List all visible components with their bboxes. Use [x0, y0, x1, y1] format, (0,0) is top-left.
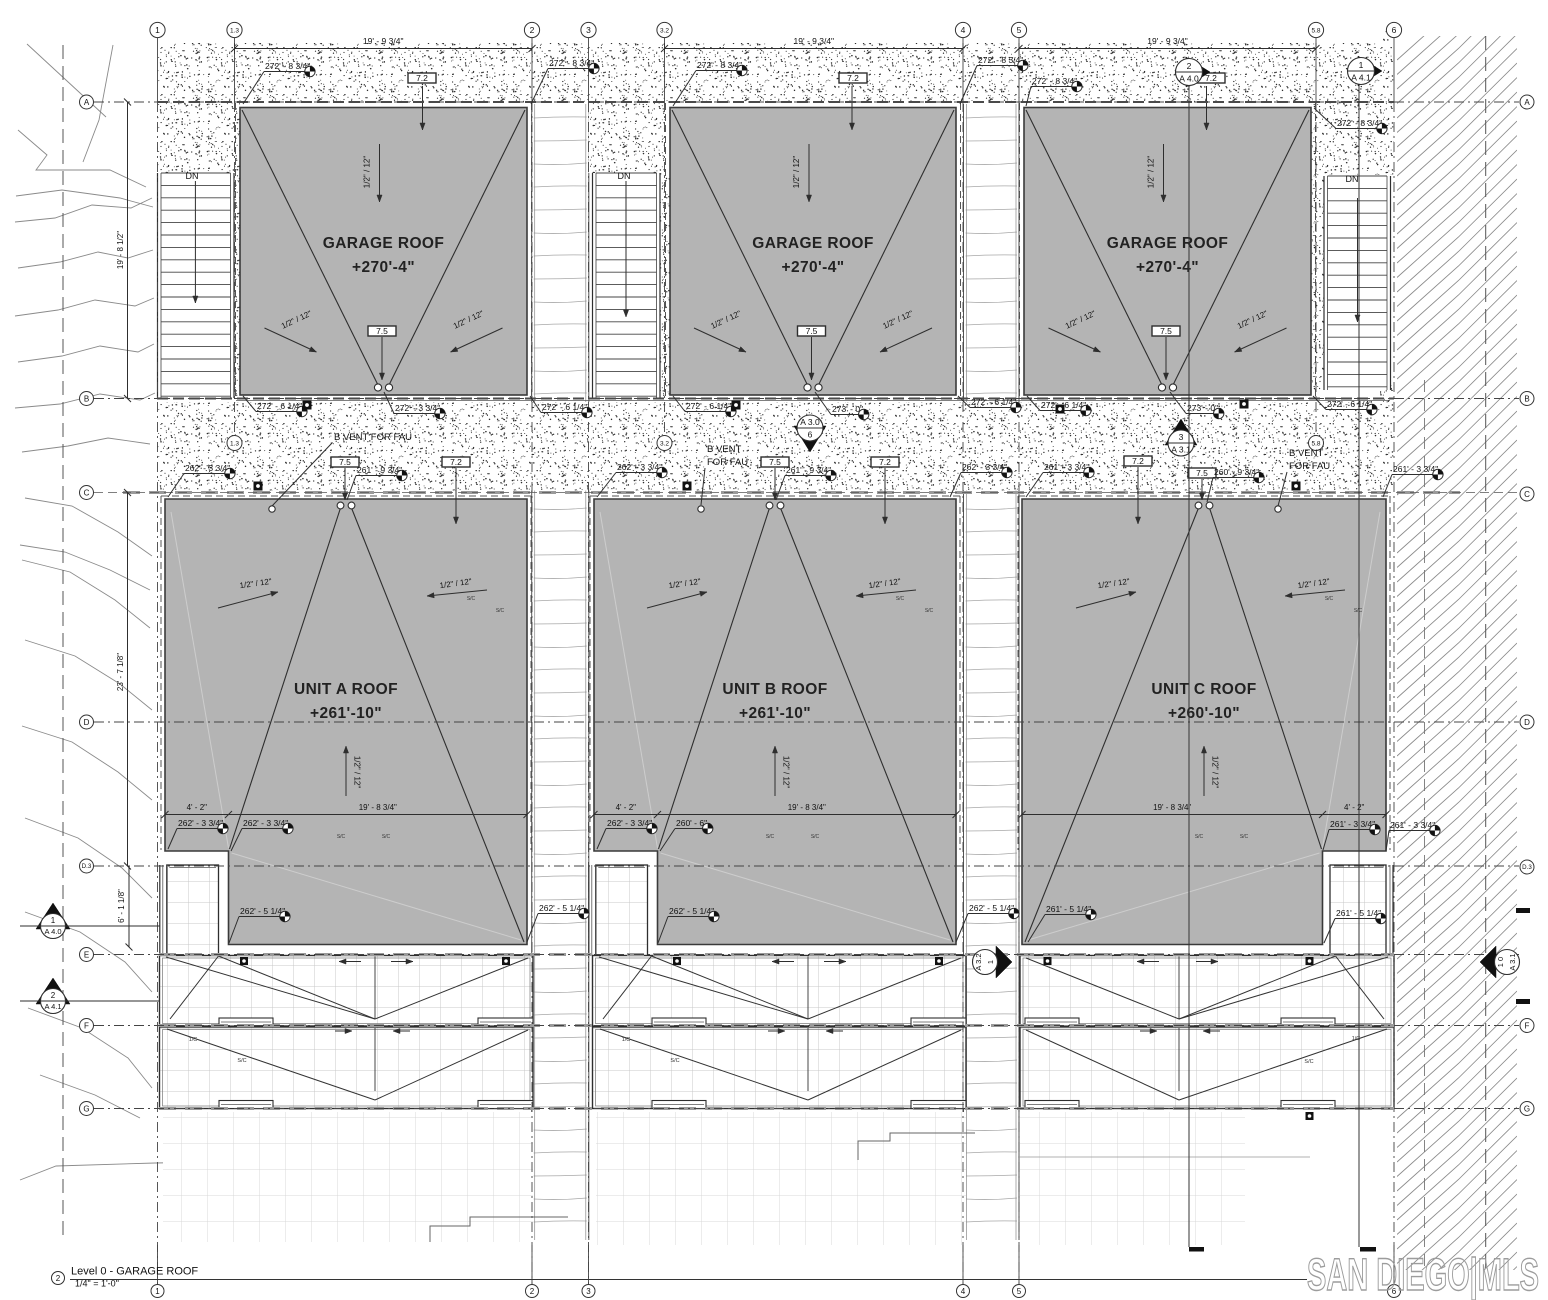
svg-text:1/C: 1/C — [622, 1037, 631, 1043]
svg-text:D: D — [84, 718, 90, 727]
svg-text:19' - 8 3/4": 19' - 8 3/4" — [359, 803, 397, 812]
svg-text:272' - 8 3/4": 272' - 8 3/4" — [549, 58, 594, 68]
svg-text:6: 6 — [1392, 25, 1397, 35]
svg-text:+270'-4": +270'-4" — [1136, 259, 1199, 276]
svg-text:262' - 5 1/4": 262' - 5 1/4" — [240, 906, 285, 916]
svg-text:262' - 3 3/4": 262' - 3 3/4" — [243, 818, 288, 828]
svg-text:A 3.2: A 3.2 — [974, 953, 983, 970]
svg-text:S/C: S/C — [1195, 834, 1204, 840]
svg-text:5: 5 — [1017, 25, 1022, 35]
svg-text:A: A — [1524, 98, 1530, 107]
svg-text:S/C: S/C — [1354, 608, 1363, 614]
svg-text:S/C: S/C — [1240, 834, 1249, 840]
svg-text:UNIT A ROOF: UNIT A ROOF — [294, 681, 398, 698]
svg-text:2: 2 — [530, 1287, 535, 1296]
svg-text:3: 3 — [586, 1287, 591, 1296]
svg-text:1/C: 1/C — [189, 1037, 198, 1043]
svg-text:+261'-10": +261'-10" — [310, 705, 382, 722]
svg-text:C: C — [1524, 490, 1530, 499]
svg-text:272' - 8 3/4": 272' - 8 3/4" — [697, 60, 742, 70]
svg-text:7.5: 7.5 — [769, 457, 781, 467]
svg-text:1/2" / 12": 1/2" / 12" — [1147, 156, 1156, 189]
svg-text:S/C: S/C — [766, 834, 775, 840]
svg-text:261' - 9 3/4": 261' - 9 3/4" — [357, 465, 402, 475]
svg-text:7.5: 7.5 — [376, 326, 388, 336]
svg-text:7.2: 7.2 — [450, 457, 462, 467]
svg-text:2: 2 — [56, 1274, 61, 1283]
svg-text:7.2: 7.2 — [1132, 456, 1144, 466]
svg-text:19' - 9 3/4": 19' - 9 3/4" — [794, 36, 835, 46]
svg-text:A 3.0: A 3.0 — [800, 417, 820, 427]
svg-text:S/C: S/C — [811, 834, 820, 840]
svg-text:4' - 2": 4' - 2" — [616, 803, 637, 812]
svg-text:B VENT: B VENT — [1289, 448, 1324, 459]
svg-text:1.3: 1.3 — [230, 440, 239, 447]
svg-text:4' - 2": 4' - 2" — [1344, 803, 1365, 812]
svg-text:S/C: S/C — [670, 1058, 679, 1064]
svg-text:272' - 8 3/4": 272' - 8 3/4" — [265, 61, 310, 71]
svg-text:S/C: S/C — [925, 608, 934, 614]
svg-text:1/2" / 12": 1/2" / 12" — [792, 156, 801, 189]
svg-text:D: D — [1524, 718, 1530, 727]
svg-text:E: E — [84, 950, 89, 959]
svg-text:261' - 3 3/4": 261' - 3 3/4" — [1330, 819, 1375, 829]
svg-text:272' - 6 1/4": 272' - 6 1/4" — [257, 401, 302, 411]
svg-text:272' - 8 3/4": 272' - 8 3/4" — [1032, 76, 1077, 86]
svg-text:+270'-4": +270'-4" — [352, 259, 415, 276]
svg-text:S/C: S/C — [467, 596, 476, 602]
svg-text:7.5: 7.5 — [806, 326, 818, 336]
svg-text:+270'-4": +270'-4" — [782, 259, 845, 276]
svg-text:1: 1 — [986, 960, 995, 964]
svg-text:3.2: 3.2 — [660, 27, 669, 34]
svg-text:UNIT C ROOF: UNIT C ROOF — [1151, 681, 1256, 698]
svg-text:272' - 6 1/4": 272' - 6 1/4" — [542, 402, 587, 412]
svg-text:1 0: 1 0 — [1496, 957, 1505, 967]
svg-text:261' - 3 3/4": 261' - 3 3/4" — [1393, 464, 1438, 474]
svg-text:A 4.0: A 4.0 — [1179, 74, 1199, 84]
svg-text:1/4" = 1'-0": 1/4" = 1'-0" — [75, 1279, 119, 1289]
svg-text:262' - 3 3/4": 262' - 3 3/4" — [617, 462, 662, 472]
svg-text:262' - 3 3/4": 262' - 3 3/4" — [185, 463, 230, 473]
svg-text:272' - 6 1/4": 272' - 6 1/4" — [971, 397, 1016, 407]
svg-text:7.2: 7.2 — [416, 73, 428, 83]
svg-text:+260'-10": +260'-10" — [1168, 705, 1240, 722]
svg-text:UNIT B ROOF: UNIT B ROOF — [722, 681, 827, 698]
svg-text:272' - 8 3/4": 272' - 8 3/4" — [978, 55, 1023, 65]
svg-text:7.5: 7.5 — [1160, 326, 1172, 336]
svg-text:1: 1 — [155, 1287, 160, 1296]
svg-text:A 3.1: A 3.1 — [1171, 445, 1191, 455]
svg-text:1: 1 — [51, 916, 56, 925]
svg-text:DN: DN — [186, 171, 199, 181]
svg-text:C: C — [84, 488, 90, 497]
svg-text:GARAGE ROOF: GARAGE ROOF — [752, 235, 874, 252]
svg-text:261' - 5 1/4": 261' - 5 1/4" — [1046, 904, 1091, 914]
svg-text:1: 1 — [155, 25, 160, 35]
svg-text:GARAGE ROOF: GARAGE ROOF — [1107, 235, 1229, 252]
svg-text:SAN DIEGO|MLS: SAN DIEGO|MLS — [1307, 1249, 1539, 1300]
svg-text:F: F — [84, 1021, 89, 1030]
svg-text:DN: DN — [1346, 174, 1359, 184]
svg-text:S/C: S/C — [237, 1058, 246, 1064]
svg-text:G: G — [83, 1104, 89, 1113]
svg-text:2: 2 — [51, 991, 56, 1000]
svg-text:+261'-10": +261'-10" — [739, 705, 811, 722]
svg-text:7.5: 7.5 — [1196, 468, 1208, 478]
svg-text:7.2: 7.2 — [879, 457, 891, 467]
svg-text:19' - 9 3/4": 19' - 9 3/4" — [1147, 36, 1188, 46]
svg-text:272' - 8 3/4": 272' - 8 3/4" — [1337, 118, 1382, 128]
svg-text:19' - 8 3/4": 19' - 8 3/4" — [1153, 803, 1191, 812]
svg-text:260' - 9 3/4": 260' - 9 3/4" — [1214, 467, 1259, 477]
svg-text:A 4.0: A 4.0 — [44, 927, 61, 936]
svg-text:7.2: 7.2 — [1205, 73, 1217, 83]
svg-text:S/C: S/C — [896, 596, 905, 602]
svg-text:D.3: D.3 — [1522, 864, 1532, 871]
svg-text:272' - 3 3/4": 272' - 3 3/4" — [395, 403, 440, 413]
svg-text:261' - 3 3/4": 261' - 3 3/4" — [1044, 462, 1089, 472]
svg-text:A: A — [84, 98, 90, 107]
svg-text:1/2" / 12": 1/2" / 12" — [353, 756, 362, 789]
svg-text:3.2: 3.2 — [660, 440, 669, 447]
svg-text:DN: DN — [618, 171, 631, 181]
svg-text:B VENT FOR FAU: B VENT FOR FAU — [334, 432, 412, 443]
svg-text:262' - 5 1/4": 262' - 5 1/4" — [669, 906, 714, 916]
svg-text:B: B — [1524, 394, 1529, 403]
svg-text:6' - 1 1/8": 6' - 1 1/8" — [117, 889, 126, 923]
svg-text:S/C: S/C — [337, 834, 346, 840]
svg-text:19' - 9 3/4": 19' - 9 3/4" — [363, 36, 404, 46]
svg-text:272' - 6 1/4": 272' - 6 1/4" — [1327, 399, 1372, 409]
svg-text:S/C: S/C — [1304, 1059, 1313, 1065]
svg-text:5.8: 5.8 — [1311, 440, 1320, 447]
svg-text:B VENT: B VENT — [707, 444, 742, 455]
svg-text:FOR FAU: FOR FAU — [1289, 461, 1330, 472]
svg-text:272' - 6 1/4": 272' - 6 1/4" — [686, 401, 731, 411]
svg-text:6: 6 — [808, 430, 813, 440]
svg-text:D.3: D.3 — [82, 863, 92, 870]
svg-text:4: 4 — [961, 1287, 966, 1296]
svg-text:F: F — [1525, 1021, 1530, 1030]
svg-text:262' - 3 3/4": 262' - 3 3/4" — [178, 818, 223, 828]
svg-text:262' - 5 1/4": 262' - 5 1/4" — [539, 903, 584, 913]
svg-text:S/C: S/C — [496, 608, 505, 614]
svg-text:2: 2 — [530, 25, 535, 35]
svg-text:262' - 3 3/4": 262' - 3 3/4" — [962, 462, 1007, 472]
svg-text:B: B — [84, 394, 89, 403]
svg-text:7.5: 7.5 — [339, 457, 351, 467]
svg-text:4: 4 — [961, 25, 966, 35]
svg-text:1/2" / 12": 1/2" / 12" — [1211, 756, 1220, 789]
svg-text:262' - 5 1/4": 262' - 5 1/4" — [969, 903, 1014, 913]
svg-text:G: G — [1524, 1104, 1530, 1113]
svg-text:A 4.1: A 4.1 — [1351, 73, 1371, 83]
svg-text:A 4.1: A 4.1 — [44, 1002, 61, 1011]
svg-text:3: 3 — [1179, 432, 1184, 442]
svg-text:19' - 8 3/4": 19' - 8 3/4" — [788, 803, 826, 812]
svg-text:A 3.1: A 3.1 — [1508, 953, 1517, 970]
svg-text:23' - 7 1/8": 23' - 7 1/8" — [116, 653, 125, 691]
svg-text:7.2: 7.2 — [847, 73, 859, 83]
svg-text:261' - 3 3/4": 261' - 3 3/4" — [1390, 820, 1435, 830]
svg-text:1/2" / 12": 1/2" / 12" — [363, 156, 372, 189]
svg-text:1/2" / 12": 1/2" / 12" — [782, 756, 791, 789]
svg-text:5: 5 — [1017, 1287, 1022, 1296]
svg-text:3: 3 — [586, 25, 591, 35]
svg-text:261' - 9 3/4": 261' - 9 3/4" — [786, 465, 831, 475]
svg-text:1: 1 — [1359, 60, 1364, 70]
svg-text:262' - 3 3/4": 262' - 3 3/4" — [607, 818, 652, 828]
svg-text:S/C: S/C — [1325, 596, 1334, 602]
svg-text:1.3: 1.3 — [230, 27, 239, 34]
svg-text:2: 2 — [1187, 61, 1192, 71]
svg-text:5.8: 5.8 — [1311, 27, 1320, 34]
svg-text:19' - 8 1/2": 19' - 8 1/2" — [116, 231, 125, 269]
svg-text:4' - 2": 4' - 2" — [187, 803, 208, 812]
svg-text:Level 0 - GARAGE ROOF: Level 0 - GARAGE ROOF — [71, 1266, 198, 1278]
svg-text:S/C: S/C — [382, 834, 391, 840]
svg-text:FOR FAU: FOR FAU — [707, 457, 748, 468]
svg-text:GARAGE ROOF: GARAGE ROOF — [323, 235, 445, 252]
